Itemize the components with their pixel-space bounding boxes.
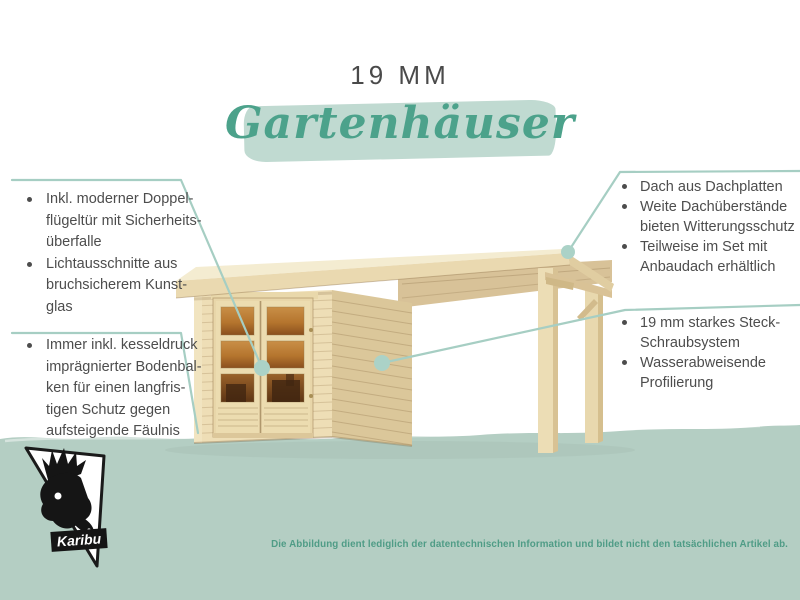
feature-line: glas (46, 297, 187, 319)
feature-line: Inkl. moderner Doppel- (46, 189, 202, 211)
bullet-icon (27, 262, 32, 267)
feature-line: Lichtausschnitte aus (46, 254, 187, 276)
feature-item: Lichtausschnitte aus bruchsicherem Kunst… (27, 254, 212, 319)
feature-line: Profilierung (640, 373, 766, 393)
feature-item: Inkl. moderner Doppel- flügeltür mit Sic… (27, 189, 212, 254)
feature-line: Wasserabweisende (640, 353, 766, 373)
feature-line: bieten Witterungsschutz (640, 217, 795, 237)
page-title: Gartenhäuser (0, 98, 800, 149)
feature-item: 19 mm starkes Steck- Schraubsystem (622, 313, 797, 353)
feature-line: Schraubsystem (640, 333, 780, 353)
ground-band (0, 425, 800, 600)
bullet-icon (622, 184, 627, 189)
feature-item: Wasserabweisende Profilierung (622, 353, 797, 393)
feature-block-left-bottom: Immer inkl. kesseldruck imprägnierter Bo… (27, 335, 217, 443)
feature-line: 19 mm starkes Steck- (640, 313, 780, 333)
feature-line: Dach aus Dachplatten (640, 177, 783, 197)
canopy-post-front (538, 268, 558, 453)
bullet-icon (622, 360, 627, 365)
bullet-icon (27, 197, 32, 202)
feature-line: Immer inkl. kesseldruck (46, 335, 202, 357)
feature-line: tigen Schutz gegen (46, 400, 202, 422)
bullet-icon (622, 244, 627, 249)
feature-item: Weite Dachüberstände bieten Witterungssc… (622, 197, 797, 237)
feature-block-right-bottom: 19 mm starkes Steck- Schraubsystem Wasse… (622, 313, 797, 393)
infographic-page: Karibu 19 MM Gartenhäuser Inkl. moderner… (0, 0, 800, 600)
feature-line: flügeltür mit Sicherheits- (46, 211, 202, 233)
door-hinge (309, 328, 313, 332)
feature-line: imprägnierter Bodenbal- (46, 357, 202, 379)
bullet-icon (622, 204, 627, 209)
feature-item: Dach aus Dachplatten (622, 177, 797, 197)
door-hinge (309, 394, 313, 398)
brand-label: Karibu (56, 530, 102, 549)
callout-dot-door (254, 360, 270, 376)
feature-line: ken für einen langfris- (46, 378, 202, 400)
feature-item: Teilweise im Set mit Anbaudach erhältlic… (622, 237, 797, 277)
feature-line: aufsteigende Fäulnis (46, 421, 202, 443)
panel-thickness-label: 19 MM (0, 60, 800, 91)
feature-block-left-top: Inkl. moderner Doppel- flügeltür mit Sic… (27, 189, 212, 318)
feature-item: Immer inkl. kesseldruck imprägnierter Bo… (27, 335, 217, 443)
garden-shed-illustration (176, 249, 614, 453)
bullet-icon (622, 320, 627, 325)
bullet-icon (27, 343, 32, 348)
feature-line: Weite Dachüberstände (640, 197, 795, 217)
callout-dot-roof (561, 245, 575, 259)
feature-block-right-top: Dach aus Dachplatten Weite Dachüberständ… (622, 177, 797, 277)
feature-line: überfalle (46, 232, 202, 254)
feature-line: Teilweise im Set mit (640, 237, 775, 257)
feature-line: Anbaudach erhältlich (640, 257, 775, 277)
disclaimer-text: Die Abbildung dient lediglich der datent… (271, 539, 788, 550)
callout-dot-wall (374, 355, 390, 371)
feature-line: bruchsicherem Kunst- (46, 275, 187, 297)
shed-side-wall (332, 290, 412, 446)
